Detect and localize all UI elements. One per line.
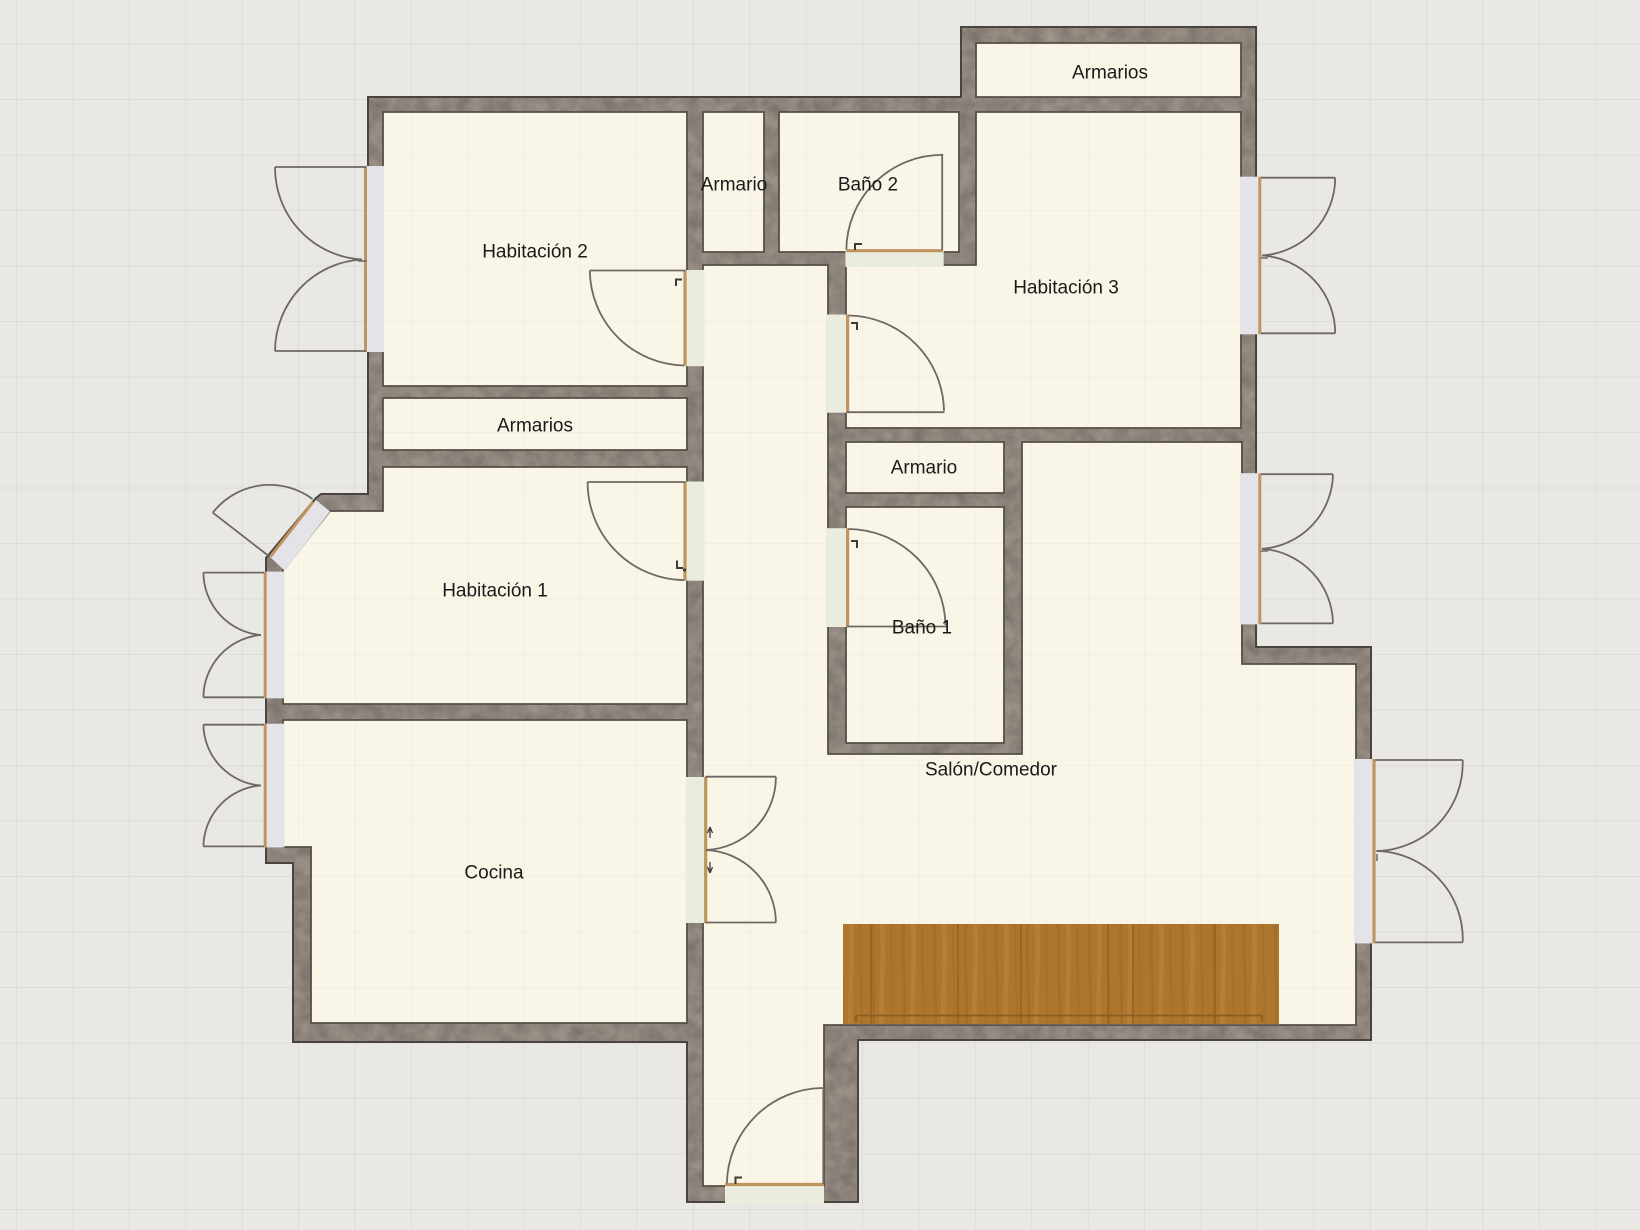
svg-text:Habitación 3: Habitación 3 (1013, 278, 1119, 299)
svg-text:Habitación 1: Habitación 1 (442, 581, 548, 602)
svg-text:Armarios: Armarios (497, 416, 573, 437)
svg-text:Cocina: Cocina (464, 863, 524, 884)
svg-text:Baño 1: Baño 1 (892, 618, 952, 639)
svg-text:Salón/Comedor: Salón/Comedor (925, 760, 1058, 781)
svg-text:Habitación 2: Habitación 2 (482, 242, 588, 263)
svg-text:Armario: Armario (891, 458, 958, 479)
svg-text:Armario: Armario (701, 175, 768, 196)
svg-text:Armarios: Armarios (1072, 63, 1148, 84)
svg-text:Baño 2: Baño 2 (838, 175, 898, 196)
